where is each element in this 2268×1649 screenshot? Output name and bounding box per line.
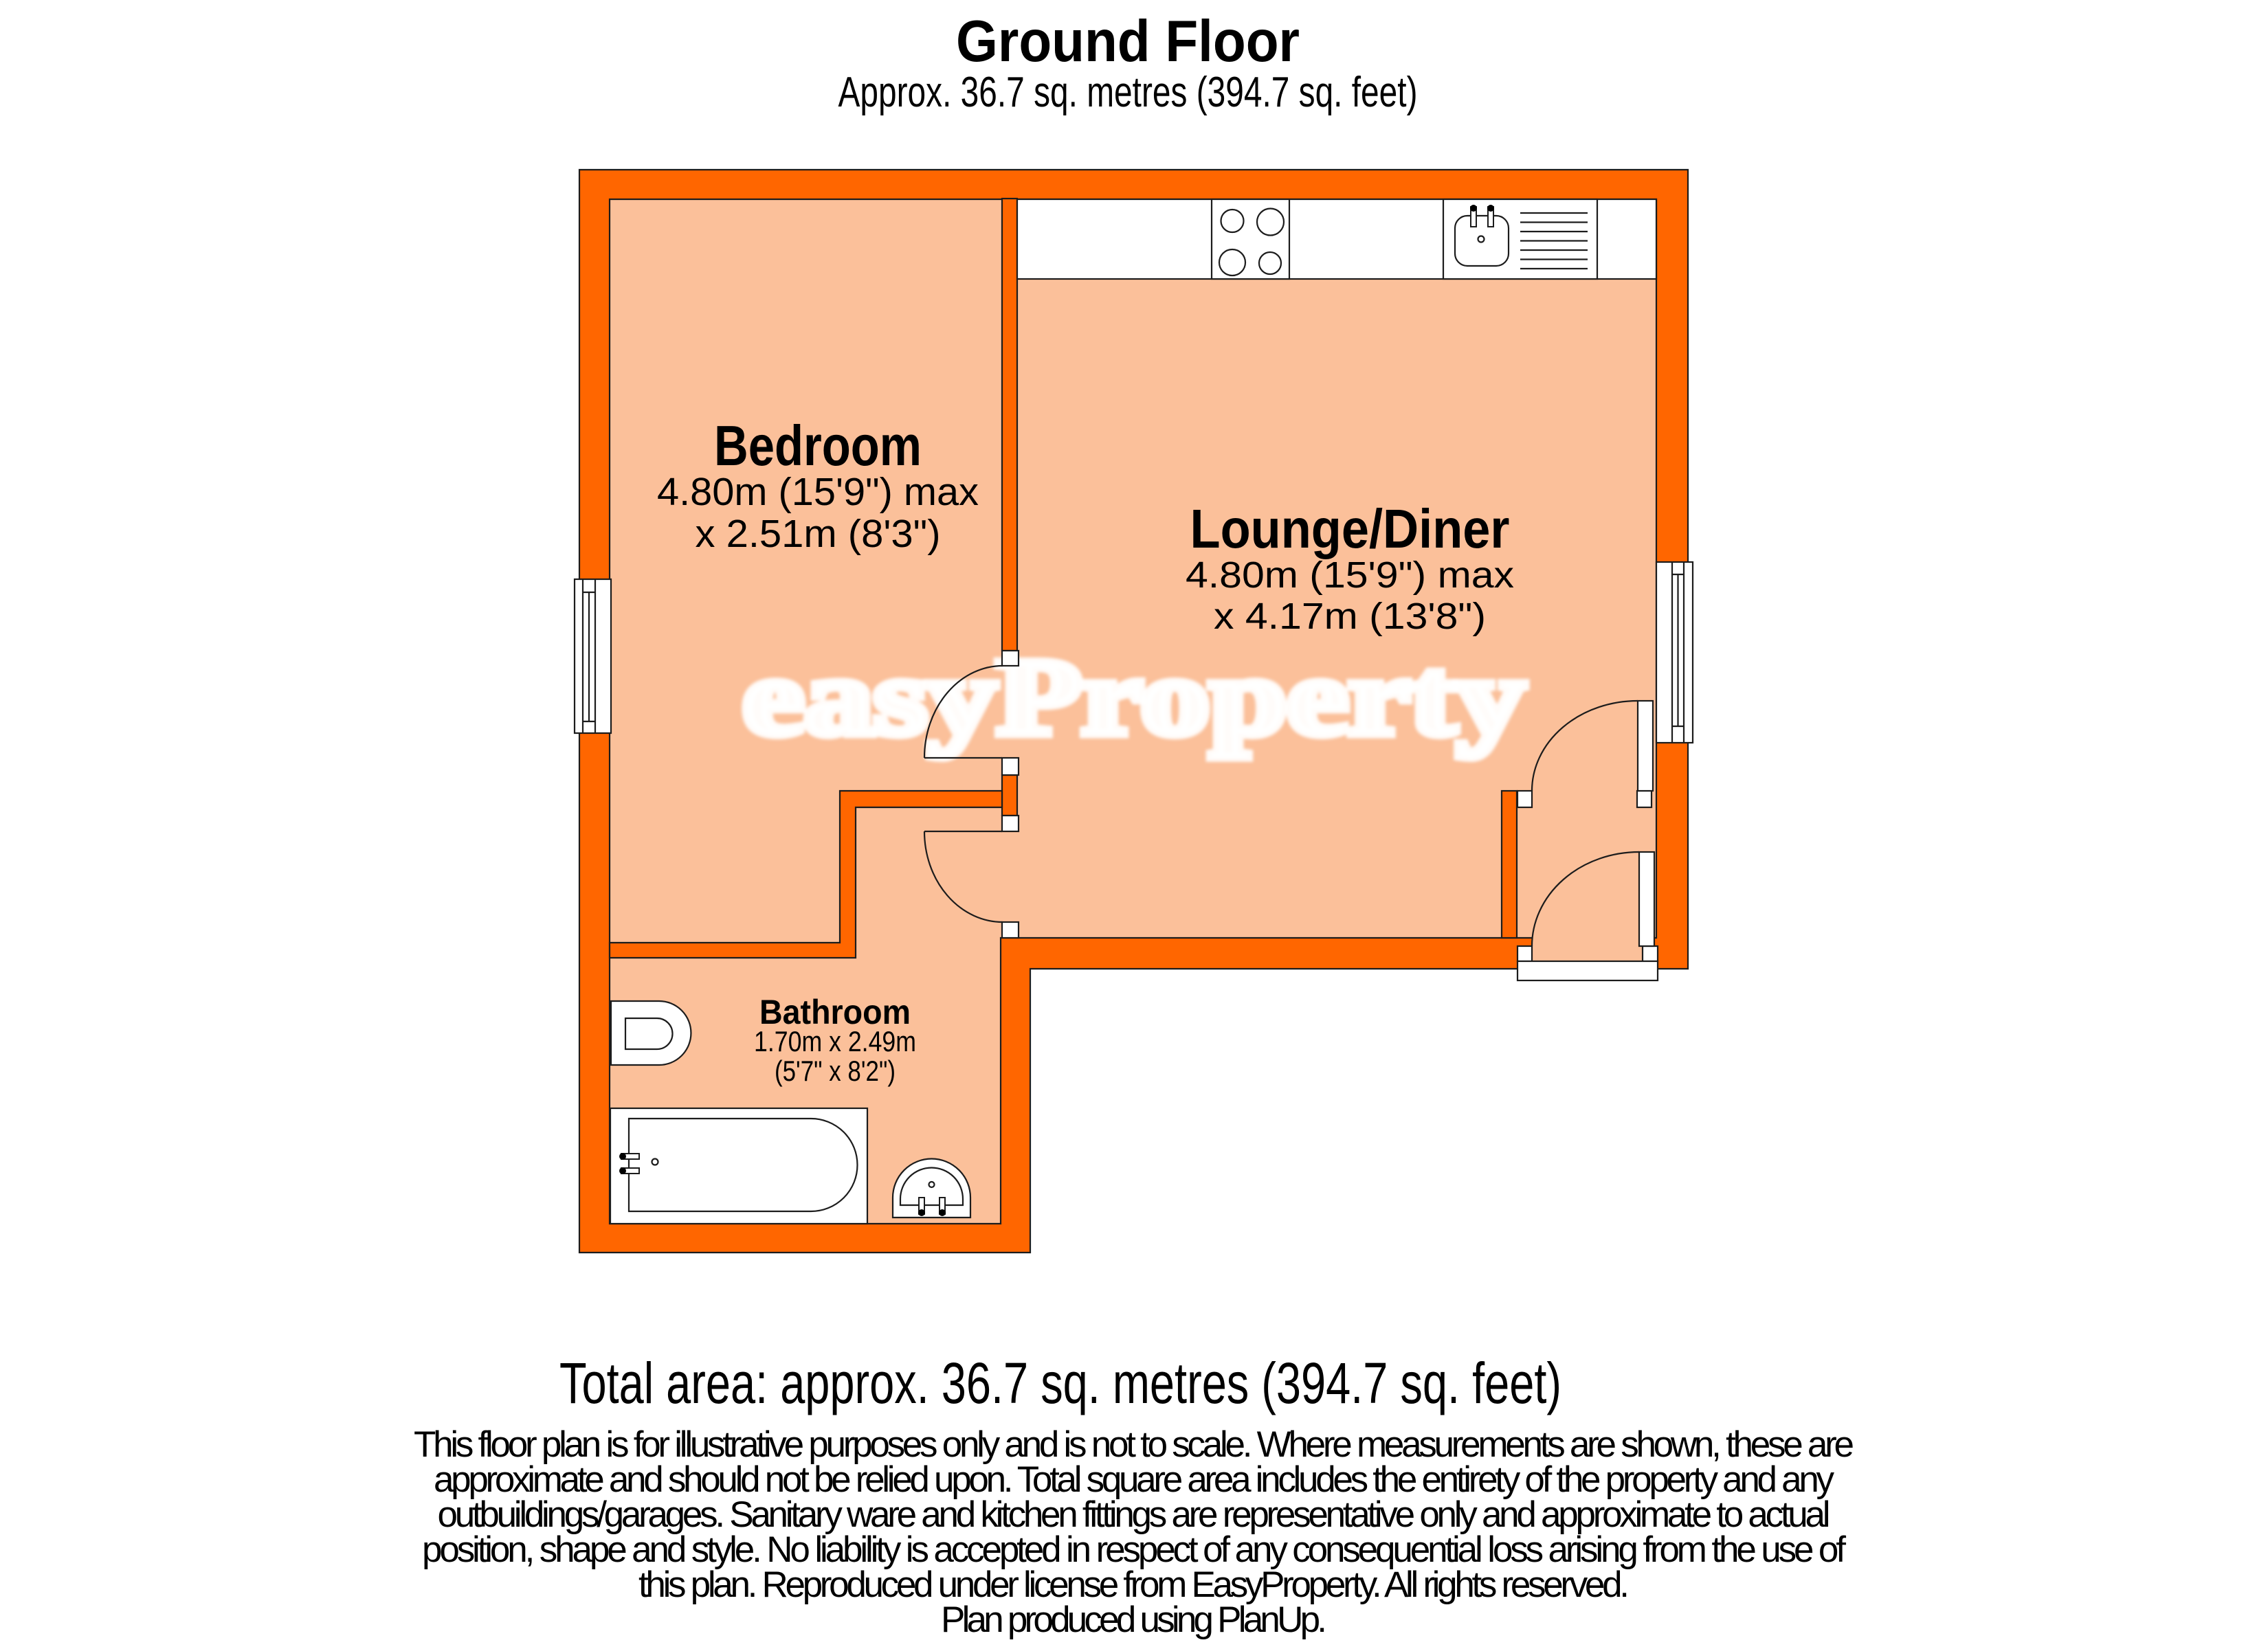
svg-text:x 4.17m (13'8"): x 4.17m (13'8") <box>1214 596 1486 637</box>
svg-text:1.70m x 2.49m: 1.70m x 2.49m <box>754 1025 916 1057</box>
svg-text:Plan produced using PlanUp.: Plan produced using PlanUp. <box>941 1600 1327 1640</box>
svg-text:Total area: approx. 36.7 sq. m: Total area: approx. 36.7 sq. metres (394… <box>559 1351 1561 1415</box>
svg-text:Bedroom: Bedroom <box>714 414 922 478</box>
svg-text:easyProperty: easyProperty <box>743 636 1526 758</box>
svg-text:4.80m (15'9") max: 4.80m (15'9") max <box>1186 554 1514 596</box>
svg-text:Lounge/Diner: Lounge/Diner <box>1190 498 1510 559</box>
svg-text:x 2.51m (8'3"): x 2.51m (8'3") <box>696 512 941 556</box>
svg-text:Ground Floor: Ground Floor <box>956 9 1300 74</box>
svg-text:Approx. 36.7 sq. metres (394.7: Approx. 36.7 sq. metres (394.7 sq. feet) <box>838 69 1418 116</box>
svg-text:4.80m (15'9") max: 4.80m (15'9") max <box>657 470 979 514</box>
svg-text:(5'7" x 8'2"): (5'7" x 8'2") <box>775 1055 896 1087</box>
